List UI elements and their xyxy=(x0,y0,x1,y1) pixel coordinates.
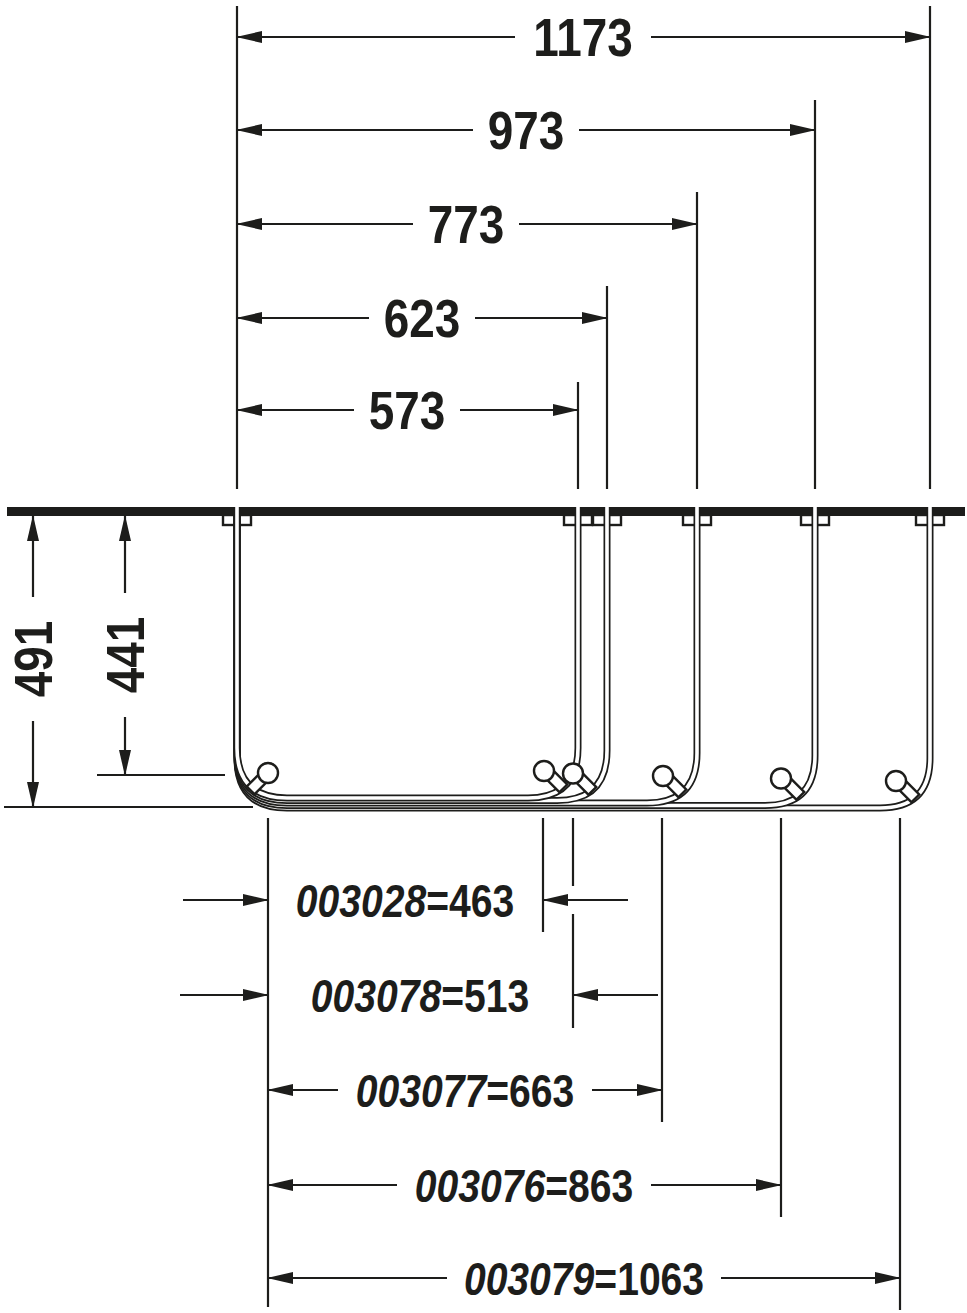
towel-rail-863 xyxy=(237,507,815,806)
towel-hook xyxy=(653,766,686,797)
top-dim-label-773: 773 xyxy=(428,195,505,255)
product-dim-label-513: 003078=513 xyxy=(311,970,529,1022)
towel-rail-1063 xyxy=(237,507,930,808)
product-dim-label-863: 003076=863 xyxy=(415,1160,633,1212)
towel-rails xyxy=(237,507,930,808)
left-dim-label-491: 491 xyxy=(4,621,64,698)
towel-rail-663 xyxy=(237,507,697,803)
product-dim-label-1063: 003079=1063 xyxy=(464,1253,704,1305)
top-dim-label-623: 623 xyxy=(384,289,461,349)
top-dim-label-573: 573 xyxy=(369,381,446,441)
towel-hook xyxy=(247,763,278,794)
technical-drawing-page: 1173 973 773 623 573 xyxy=(0,0,967,1313)
towel-hook xyxy=(563,764,596,795)
mounting-brackets xyxy=(223,515,944,525)
towel-hook xyxy=(886,771,919,802)
towel-rail-513 xyxy=(237,507,607,801)
technical-drawing: 1173 973 773 623 573 xyxy=(0,0,967,1313)
product-dimensions: 003028=463 003078=513 003077=663 003076=… xyxy=(180,818,900,1310)
left-dim-label-441: 441 xyxy=(96,617,156,694)
towel-rail-463 xyxy=(237,507,578,798)
top-dimensions: 1173 973 773 623 573 xyxy=(237,6,930,489)
left-dimensions: 491 441 xyxy=(4,516,253,807)
product-dim-label-463: 003028=463 xyxy=(296,875,514,927)
towel-hook xyxy=(771,769,804,800)
product-dim-label-663: 003077=663 xyxy=(356,1065,574,1117)
top-dim-label-973: 973 xyxy=(488,101,565,161)
top-dim-label-1173: 1173 xyxy=(533,8,633,68)
